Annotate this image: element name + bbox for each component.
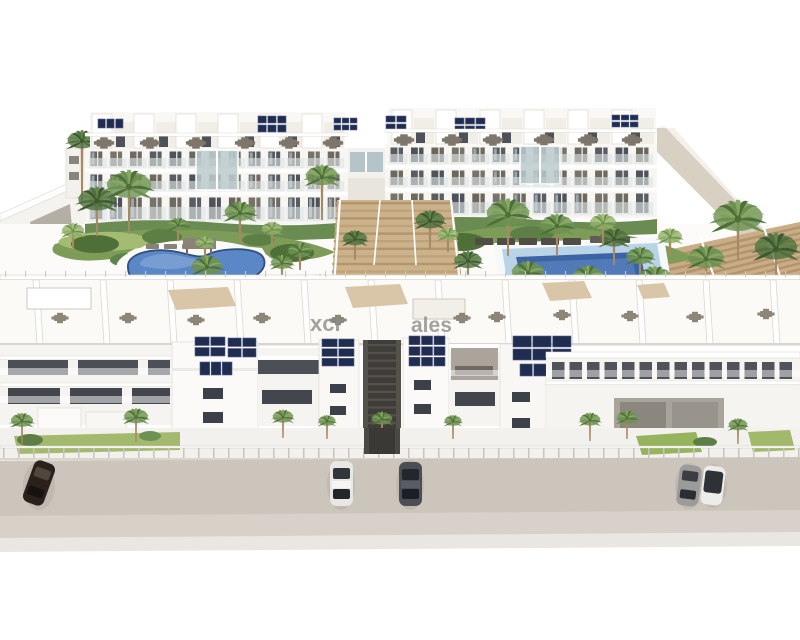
svg-text:xcr: xcr (310, 311, 343, 336)
svg-text:ales: ales (411, 314, 452, 337)
